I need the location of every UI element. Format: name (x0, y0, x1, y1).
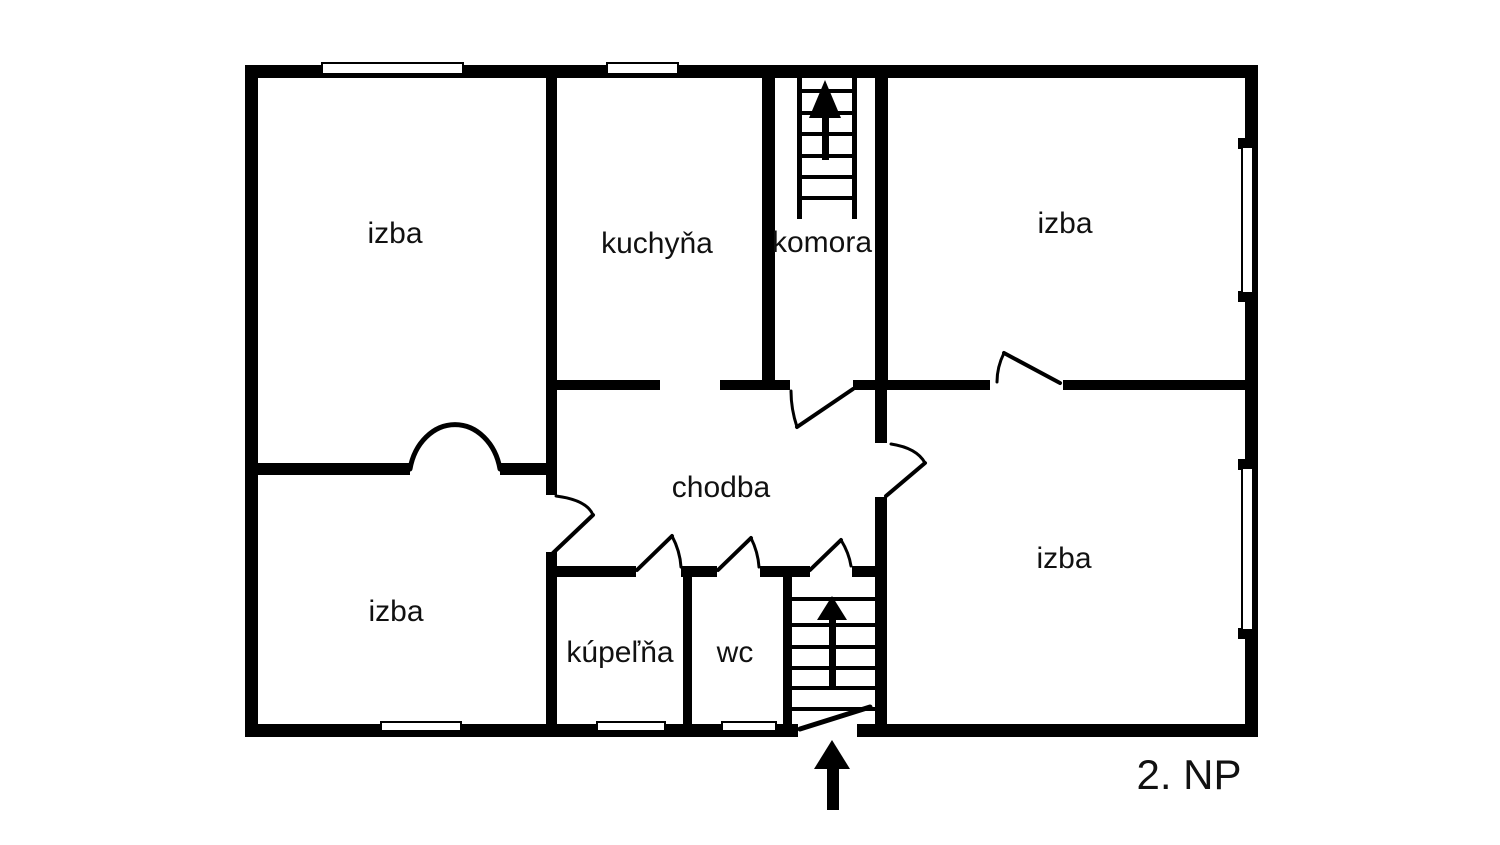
room-label-top-left-room: izba (367, 217, 422, 250)
entrance-up-arrow-icon (814, 740, 850, 810)
room-labels: izba kuchyňa komora izba chodba izba kúp… (367, 207, 1092, 669)
wall-outer-bottom-right (857, 724, 1258, 737)
door-hall-bathroom (637, 536, 681, 570)
door-hall-bottom-right-room (886, 444, 925, 496)
wall-outer-left (245, 65, 258, 737)
wall-kitchen-hall-b (720, 380, 762, 390)
wall-pantry-right (875, 78, 888, 390)
window-bottom-right-room (1242, 468, 1253, 630)
wall-hall-bottom-a (546, 566, 636, 577)
wall-hall-rightroom-a (875, 390, 887, 443)
wall-right-izbas-b (1063, 380, 1245, 390)
room-label-bottom-right-room: izba (1036, 542, 1091, 575)
room-label-top-right-room: izba (1037, 207, 1092, 240)
window-wc (722, 722, 776, 731)
door-right-izbas (997, 353, 1060, 383)
window-bottom-left-room (381, 722, 461, 731)
wall-leftroom-bathroom (546, 552, 557, 724)
wall-pantry-hall-a (775, 380, 790, 390)
wall-bathroom-wc (683, 577, 692, 724)
room-label-bottom-left-room: izba (368, 595, 423, 628)
wall-hall-bottom-c (760, 566, 810, 577)
room-label-kitchen: kuchyňa (601, 227, 713, 260)
door-arch-left-izbas (410, 425, 500, 469)
room-label-bathroom: kúpeľňa (566, 636, 673, 669)
wall-kitchen-hall-a (551, 380, 660, 390)
wall-left-izbas-b (500, 463, 546, 475)
door-hall-bottom-left-room (553, 496, 593, 553)
window-top-right-room (1242, 147, 1253, 293)
floor-title: 2. NP (1136, 751, 1241, 798)
wall-wc-stairwell (783, 577, 792, 724)
floor-plan-page: izba kuchyňa komora izba chodba izba kúp… (0, 0, 1500, 845)
door-hall-stairs (810, 540, 851, 570)
up-arrow-icon (817, 596, 847, 686)
stairs-upper (797, 78, 857, 219)
room-label-hallway: chodba (672, 471, 771, 504)
stairs-lower (792, 596, 875, 729)
stair-tread (797, 175, 857, 179)
stair-tread (797, 196, 857, 200)
wall-leftrooms-kitchen (546, 78, 557, 495)
door-hall-wc (718, 538, 759, 570)
wall-right-izbas-a (887, 380, 990, 390)
door-hall-pantry (791, 389, 853, 427)
window-top-left-room (322, 63, 463, 74)
wall-hall-rightroom-b (875, 497, 887, 737)
stair-tread (792, 686, 875, 690)
wall-hall-bottom-b (681, 566, 717, 577)
room-label-pantry: komora (772, 226, 872, 259)
wall-left-izbas-a (255, 463, 410, 475)
wall-hall-bottom-d (852, 566, 887, 577)
window-kitchen (607, 63, 678, 74)
window-bathroom (597, 722, 665, 731)
wall-outer-bottom-left (245, 724, 798, 737)
room-label-toilet: wc (716, 636, 754, 669)
floor-plan-canvas: izba kuchyňa komora izba chodba izba kúp… (0, 0, 1500, 845)
